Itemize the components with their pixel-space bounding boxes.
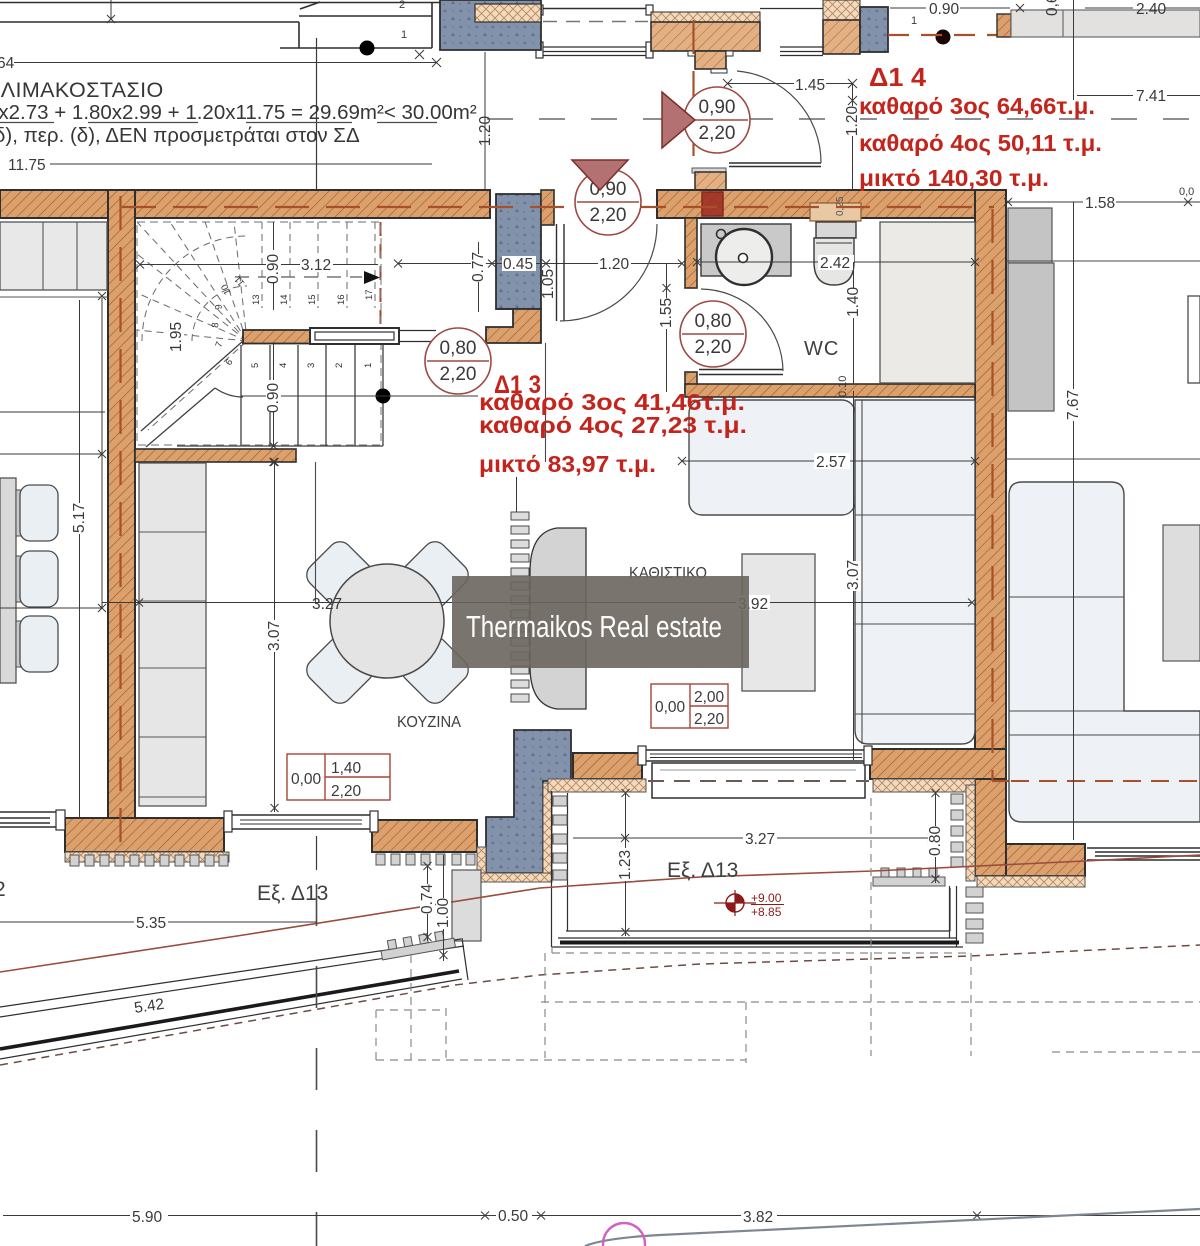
svg-text:5.90: 5.90 (132, 1209, 163, 1226)
svg-text:3: 3 (306, 363, 317, 368)
svg-text:5.17: 5.17 (71, 503, 88, 533)
svg-text:3.27: 3.27 (312, 596, 342, 613)
svg-text:0,0: 0,0 (1179, 186, 1194, 198)
svg-text:1: 1 (911, 15, 917, 27)
svg-text:ΚΟΥΖΙΝΑ: ΚΟΥΖΙΝΑ (397, 714, 461, 731)
svg-text:1.23: 1.23 (617, 850, 634, 880)
svg-text:1: 1 (363, 363, 374, 368)
svg-text:Εξ. Δ13: Εξ. Δ13 (667, 859, 738, 882)
svg-text:0.74: 0.74 (419, 883, 436, 914)
svg-text:2,20: 2,20 (590, 205, 627, 226)
svg-text:0.77: 0.77 (470, 252, 487, 282)
svg-text:0.90: 0.90 (929, 1, 960, 18)
svg-text:2: 2 (0, 878, 6, 901)
svg-text:Εξ. Δ13: Εξ. Δ13 (257, 882, 328, 905)
svg-text:16: 16 (336, 294, 347, 305)
svg-text:+9.00: +9.00 (751, 891, 782, 905)
svg-text:καθαρό 4ος 27,23 τ.μ.: καθαρό 4ος 27,23 τ.μ. (479, 412, 747, 438)
svg-text:2,20: 2,20 (699, 123, 736, 144)
svg-text:0.45: 0.45 (503, 256, 533, 273)
svg-text:0,6: 0,6 (1044, 0, 1061, 16)
svg-text:2,20: 2,20 (331, 783, 362, 800)
svg-text:3.07: 3.07 (845, 560, 862, 590)
svg-text:0,80: 0,80 (695, 311, 732, 332)
svg-text:Δ1 4: Δ1 4 (869, 62, 927, 92)
svg-text:2,20: 2,20 (695, 337, 732, 358)
svg-text:0,80: 0,80 (440, 338, 477, 359)
svg-text:13: 13 (251, 294, 262, 305)
svg-text:0,00: 0,00 (291, 771, 322, 788)
svg-text:4: 4 (278, 363, 289, 368)
svg-text:δ), περ. (δ), ΔΕΝ προσμετράται: δ), περ. (δ), ΔΕΝ προσμετράται στον ΣΔ (0, 124, 360, 147)
svg-text:7.41: 7.41 (1136, 88, 1166, 105)
svg-text:1: 1 (401, 29, 407, 41)
svg-text:2,20: 2,20 (694, 711, 725, 728)
svg-text:0.90: 0.90 (265, 253, 282, 284)
svg-text:1.55: 1.55 (658, 298, 675, 328)
svg-text:5: 5 (250, 363, 261, 368)
svg-text:3.12: 3.12 (301, 257, 331, 274)
svg-text:0,00: 0,00 (655, 699, 686, 716)
svg-text:1.40: 1.40 (845, 286, 862, 317)
svg-text:1.95: 1.95 (168, 322, 185, 352)
svg-text:3.27: 3.27 (745, 831, 775, 848)
svg-text:7.67: 7.67 (1065, 390, 1082, 420)
svg-text:0.50: 0.50 (498, 1208, 529, 1225)
svg-text:καθαρό 4ος 50,11 τ.μ.: καθαρό 4ος 50,11 τ.μ. (859, 130, 1102, 156)
svg-text:2.40: 2.40 (1136, 1, 1167, 18)
svg-text:15: 15 (307, 294, 318, 305)
svg-text:0,90: 0,90 (699, 97, 736, 118)
svg-text:WC: WC (804, 338, 839, 360)
svg-text:1,40: 1,40 (331, 760, 362, 777)
svg-text:1.20: 1.20 (477, 116, 494, 147)
svg-text:καθαρό 3ος 64,66τ.μ.: καθαρό 3ος 64,66τ.μ. (859, 93, 1095, 119)
svg-text:0.10: 0.10 (837, 376, 849, 397)
svg-text:1.45: 1.45 (795, 77, 825, 94)
svg-text:1.05: 1.05 (540, 269, 557, 299)
svg-text:+8.85: +8.85 (751, 905, 782, 919)
svg-text:μικτό 140,30 τ.μ.: μικτό 140,30 τ.μ. (859, 165, 1049, 191)
svg-text:2,00: 2,00 (694, 689, 725, 706)
svg-text:Thermaikos Real estate: Thermaikos Real estate (466, 609, 722, 644)
svg-text:1.58: 1.58 (1085, 195, 1115, 212)
svg-text:0.80: 0.80 (927, 825, 944, 856)
svg-text:1.00: 1.00 (435, 897, 452, 928)
svg-text:3.82: 3.82 (743, 1209, 773, 1226)
svg-text:5.35: 5.35 (136, 915, 166, 932)
svg-text:64: 64 (0, 55, 15, 72)
svg-text:0.90: 0.90 (265, 382, 282, 413)
svg-text:1.20: 1.20 (599, 256, 630, 273)
svg-text:11.75: 11.75 (8, 157, 46, 174)
svg-text:2,20: 2,20 (440, 364, 477, 385)
svg-text:μικτό 83,97 τ.μ.: μικτό 83,97 τ.μ. (479, 451, 656, 477)
svg-text:8: 8 (210, 322, 221, 328)
svg-text:17: 17 (364, 289, 375, 300)
svg-text:2x2.73 + 1.80x2.99 + 1.20x11.7: 2x2.73 + 1.80x2.99 + 1.20x11.75 = 29.69m… (0, 101, 477, 124)
svg-text:2.42: 2.42 (820, 255, 850, 272)
svg-text:14: 14 (279, 294, 290, 305)
svg-text:2: 2 (334, 363, 345, 368)
svg-text:2.57: 2.57 (816, 454, 846, 471)
svg-text:2: 2 (399, 0, 405, 11)
svg-text:ΚΛΙΜΑΚΟΣΤΑΣΙΟ: ΚΛΙΜΑΚΟΣΤΑΣΙΟ (0, 78, 164, 102)
svg-text:3.07: 3.07 (266, 621, 283, 651)
